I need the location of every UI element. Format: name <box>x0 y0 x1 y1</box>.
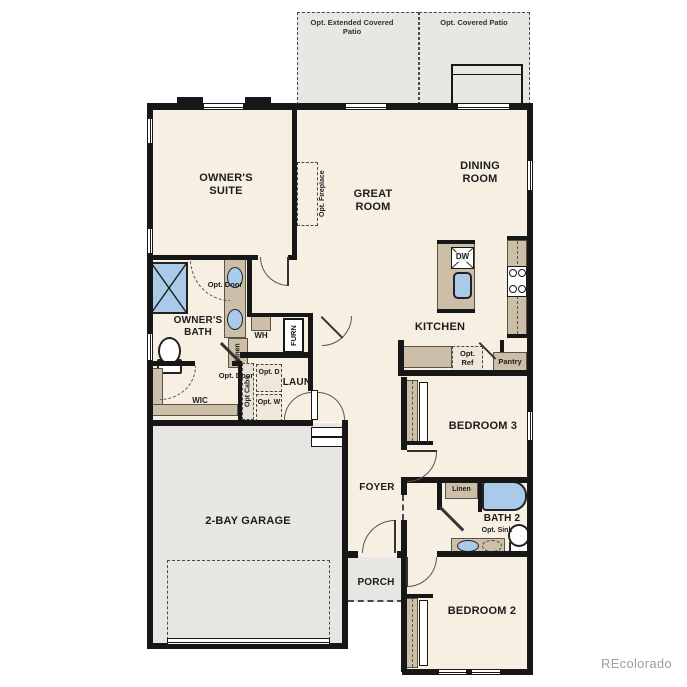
opt-fireplace-outline <box>297 162 318 226</box>
opt-door-label-bath: Opt. Door <box>203 280 247 289</box>
garage-apron <box>167 560 330 640</box>
wall-bath2-north <box>437 477 533 483</box>
wall-utility-top <box>247 313 312 317</box>
wall-tub-west <box>478 481 482 512</box>
wall-counter-cap-bottom <box>507 334 533 338</box>
step <box>311 437 345 447</box>
patio-extended-label: Opt. Extended Covered Patio <box>307 18 397 37</box>
wall-garage-top-a <box>147 420 313 426</box>
wall-bath-east <box>247 255 252 317</box>
room-label-porch: PORCH <box>352 577 400 589</box>
wall-bedroom2-closet-cap <box>403 594 433 598</box>
window <box>438 669 467 675</box>
door-leaf <box>394 520 396 553</box>
wall-exterior-left <box>147 103 153 649</box>
wall-bath2-south <box>437 551 533 557</box>
window <box>457 103 510 110</box>
room-label-bath2: BATH 2 <box>480 513 524 525</box>
room-label-foyer: FOYER <box>354 482 400 494</box>
room-label-owners-bath: OWNER'S BATH <box>163 315 233 339</box>
closet-dash-line <box>412 599 413 667</box>
linen-label-2: Linen <box>446 486 477 494</box>
room-label-owners-suite: OWNER'S SUITE <box>186 172 266 198</box>
window <box>471 669 501 675</box>
opt-sink-label: Opt. Sink <box>474 527 520 535</box>
wall-kitchen-south <box>398 370 533 376</box>
wall-counter-cap-top <box>507 236 533 240</box>
window <box>147 228 153 254</box>
wall-garage-right <box>342 420 348 649</box>
room-label-dining-room: DINING ROOM <box>448 160 512 186</box>
watermark: REcolorado <box>601 656 672 671</box>
wall-island-cap-top <box>437 240 475 244</box>
window <box>203 103 244 110</box>
wall-bedroom3-closet-cap <box>403 441 433 445</box>
garage-door <box>167 638 330 645</box>
opt-dryer-label: Opt. D <box>257 369 281 377</box>
floor-plan: Opt. Extended Covered Patio Opt. Covered… <box>0 0 687 687</box>
burner-4 <box>518 285 526 293</box>
window <box>345 103 387 110</box>
step <box>311 427 345 437</box>
wall-pantry-stub <box>500 340 504 352</box>
opt-washer-label: Opt. W <box>257 399 281 407</box>
water-heater <box>251 315 271 331</box>
bedroom3-closet-door <box>419 382 428 442</box>
door-leaf <box>407 450 437 452</box>
patio-covered-label: Opt. Covered Patio <box>429 18 519 27</box>
pantry-label: Pantry <box>494 357 526 366</box>
pilaster <box>177 97 203 109</box>
burner-1 <box>509 269 517 277</box>
room-label-laundry: LAUN <box>278 377 316 389</box>
room-label-bedroom3: BEDROOM 3 <box>433 420 533 433</box>
window <box>527 160 533 191</box>
wall-kitchen-west <box>398 340 404 372</box>
room-label-garage: 2-BAY GARAGE <box>198 515 298 528</box>
burner-3 <box>509 285 517 293</box>
kitchen-sink <box>453 272 472 299</box>
dw-label: DW <box>452 252 473 262</box>
shower <box>150 262 188 314</box>
wall-island-cap-bottom <box>437 309 475 313</box>
wall-garage-top-b <box>345 420 348 426</box>
porch-edge-line <box>348 600 403 602</box>
patio-structure <box>451 64 523 105</box>
opt-ref-label: Opt. Ref <box>453 349 482 368</box>
room-label-wic: WIC <box>186 396 214 406</box>
opt-fireplace-label: Opt. Fireplace <box>316 163 329 225</box>
window <box>147 333 153 361</box>
wall-suite-south-b <box>288 255 297 260</box>
wall-bedroom2-bottom <box>402 669 533 675</box>
shower-glass-icon <box>152 264 186 312</box>
opt-cabs-label: Opt Cabs <box>242 363 254 420</box>
burner-2 <box>518 269 526 277</box>
wh-label: WH <box>251 331 271 341</box>
bedroom2-closet-door <box>419 600 428 666</box>
wall-wing-west-1 <box>401 377 407 450</box>
bathtub <box>482 481 527 511</box>
door-leaf <box>406 557 408 587</box>
pilaster <box>245 97 271 109</box>
window <box>147 118 153 144</box>
wall-suite-east <box>292 103 297 260</box>
room-label-great-room: GREAT ROOM <box>338 188 408 214</box>
door-leaf <box>287 257 289 286</box>
closet-dash-line <box>412 381 413 441</box>
room-label-kitchen: KITCHEN <box>408 321 472 334</box>
cased-opening-dashed <box>402 495 404 520</box>
kitchen-counter-south <box>402 346 452 368</box>
room-label-bedroom2: BEDROOM 2 <box>430 605 534 618</box>
patio-structure-counter-line <box>453 74 521 75</box>
garage-entry-door-leaf <box>311 390 318 420</box>
furn-label: FURN <box>283 318 304 353</box>
